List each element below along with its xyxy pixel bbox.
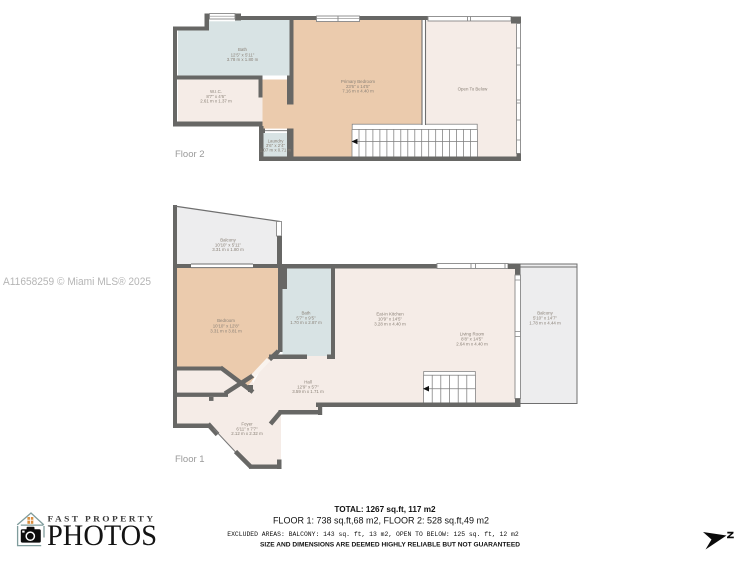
svg-text:7.16 m x 4.40 m: 7.16 m x 4.40 m (342, 89, 374, 94)
svg-text:1.78 m x 4.44 m: 1.78 m x 4.44 m (529, 321, 561, 326)
svg-text:3.31 m x 1.80 m: 3.31 m x 1.80 m (212, 247, 244, 252)
svg-text:2.61 m x 1.37 m: 2.61 m x 1.37 m (200, 99, 232, 104)
svg-text:EXCLUDED AREAS: BALCONY: 143 s: EXCLUDED AREAS: BALCONY: 143 sq. ft, 13 … (227, 531, 519, 538)
svg-text:Open To Below: Open To Below (458, 87, 489, 92)
svg-text:TOTAL: 1267 sq.ft, 117 m2: TOTAL: 1267 sq.ft, 117 m2 (334, 505, 436, 514)
svg-text:2.64 m x 4.40 m: 2.64 m x 4.40 m (456, 342, 488, 347)
svg-text:Floor 2: Floor 2 (175, 149, 205, 160)
svg-text:1.70 m x 2.87 m: 1.70 m x 2.87 m (290, 320, 322, 325)
svg-text:PHOTOS: PHOTOS (47, 519, 157, 552)
svg-text:Floor 1: Floor 1 (175, 454, 205, 465)
svg-text:A11658259 © Miami MLS® 2025: A11658259 © Miami MLS® 2025 (3, 276, 151, 288)
svg-text:SIZE AND DIMENSIONS ARE DEEMED: SIZE AND DIMENSIONS ARE DEEMED HIGHLY RE… (260, 542, 520, 549)
svg-text:3.78 m x 1.80 m: 3.78 m x 1.80 m (227, 57, 259, 62)
svg-text:3.31 m x 3.81 m: 3.31 m x 3.81 m (210, 329, 242, 334)
svg-text:3.59 m x 1.71 m: 3.59 m x 1.71 m (292, 389, 324, 394)
svg-text:1.07 m x 0.71 m: 1.07 m x 0.71 m (260, 148, 292, 153)
svg-text:3.28 m x 4.40 m: 3.28 m x 4.40 m (374, 322, 406, 327)
svg-text:Bedroom: Bedroom (217, 318, 235, 323)
svg-text:FLOOR 1: 738 sq.ft,68 m2, FLOO: FLOOR 1: 738 sq.ft,68 m2, FLOOR 2: 528 s… (273, 516, 489, 526)
svg-text:2.12 m x 2.32 m: 2.12 m x 2.32 m (231, 431, 263, 436)
svg-text:Bath: Bath (238, 47, 248, 52)
